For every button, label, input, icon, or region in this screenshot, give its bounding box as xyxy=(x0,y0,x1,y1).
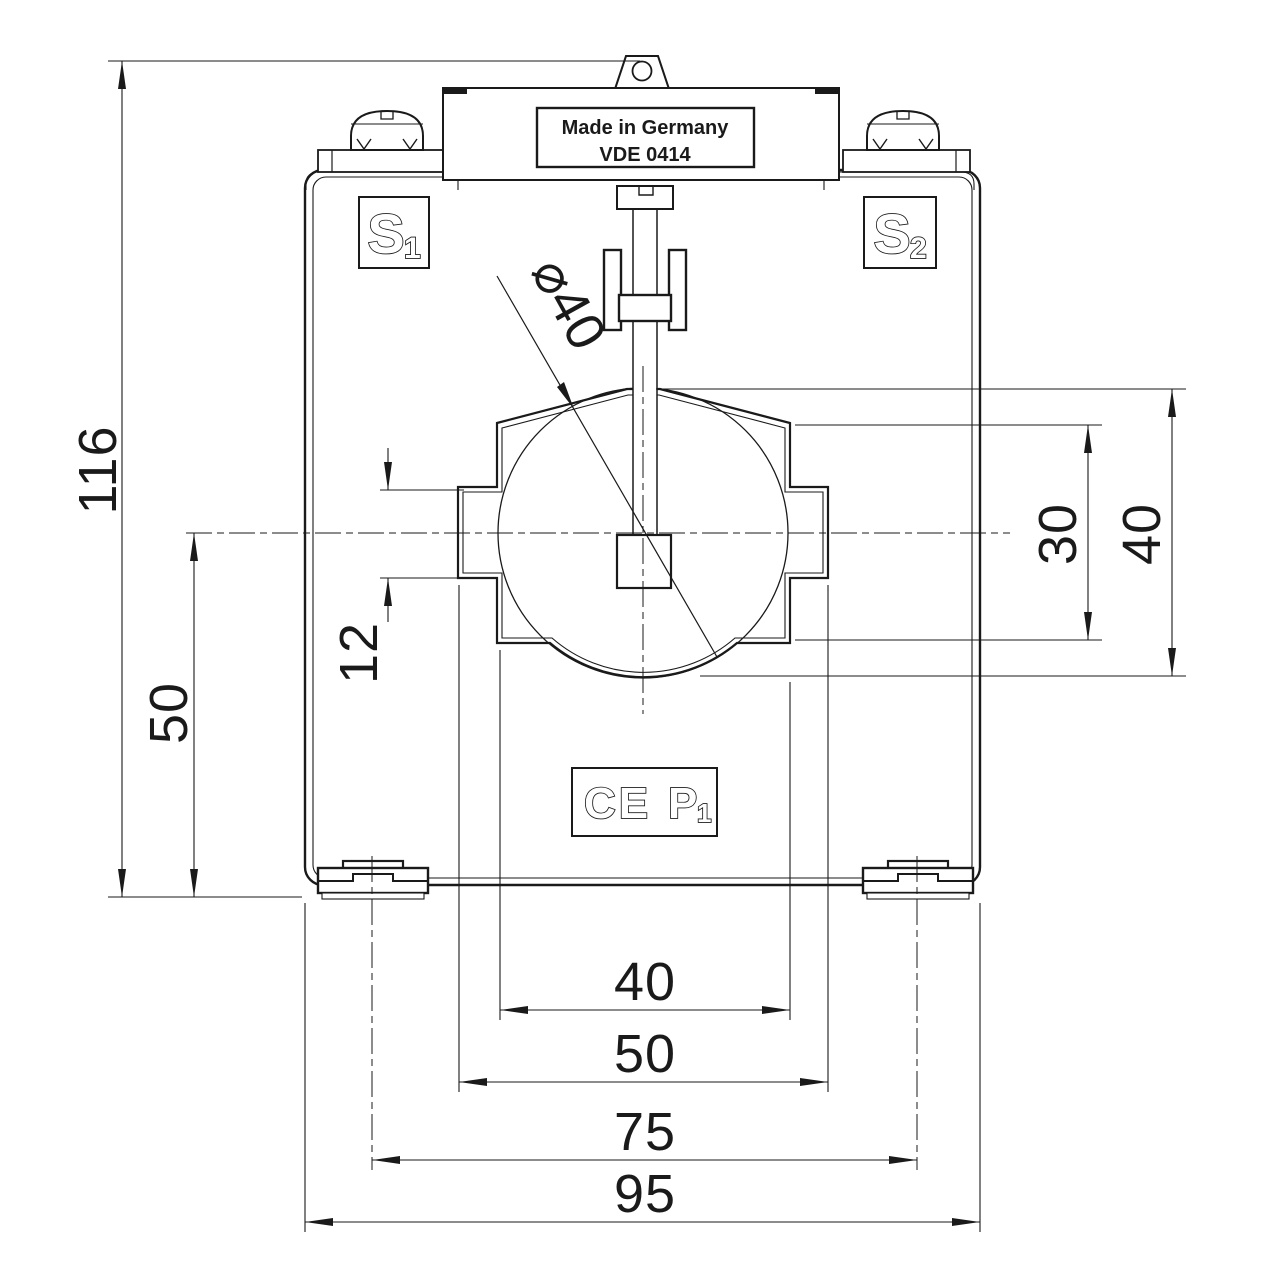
s2-marking: S 2 xyxy=(864,197,936,268)
dim-text-30: 30 xyxy=(1028,503,1088,565)
transformer-front-view-drawing: Made in Germany VDE 0414 S 1 S 2 xyxy=(0,0,1280,1280)
p1-subscript: 1 xyxy=(697,798,711,828)
top-label-block: Made in Germany VDE 0414 xyxy=(443,88,839,180)
dim-text-50-bottom: 50 xyxy=(614,1024,676,1084)
technical-drawing-page: Made in Germany VDE 0414 S 1 S 2 xyxy=(0,0,1280,1280)
dim-text-40-right: 40 xyxy=(1112,503,1172,565)
dim-text-50-left: 50 xyxy=(139,682,199,744)
dim-text-12: 12 xyxy=(329,622,389,684)
s1-letter: S xyxy=(367,202,404,265)
center-nut xyxy=(617,535,671,588)
p1-letter: P xyxy=(668,779,700,828)
block-corner-mark-right xyxy=(815,88,839,94)
dim-text-116: 116 xyxy=(68,425,128,514)
ce-logo: CE xyxy=(584,779,651,828)
s1-marking: S 1 xyxy=(359,197,429,268)
terminal-screw-left xyxy=(351,111,423,150)
vde-standard-text: VDE 0414 xyxy=(599,144,691,166)
dim-text-95: 95 xyxy=(614,1164,676,1224)
ce-p1-marking: CE P 1 xyxy=(572,768,717,836)
s2-subscript: 2 xyxy=(910,232,927,265)
terminal-screw-right xyxy=(867,111,939,150)
dim-text-75: 75 xyxy=(614,1102,676,1162)
made-in-germany-text: Made in Germany xyxy=(562,117,730,139)
s2-letter: S xyxy=(873,202,910,265)
s1-subscript: 1 xyxy=(404,232,421,265)
screw-head xyxy=(617,186,673,209)
lug-hole xyxy=(633,62,652,81)
dim-text-40-bottom: 40 xyxy=(614,952,676,1012)
block-corner-mark-left xyxy=(443,88,467,94)
